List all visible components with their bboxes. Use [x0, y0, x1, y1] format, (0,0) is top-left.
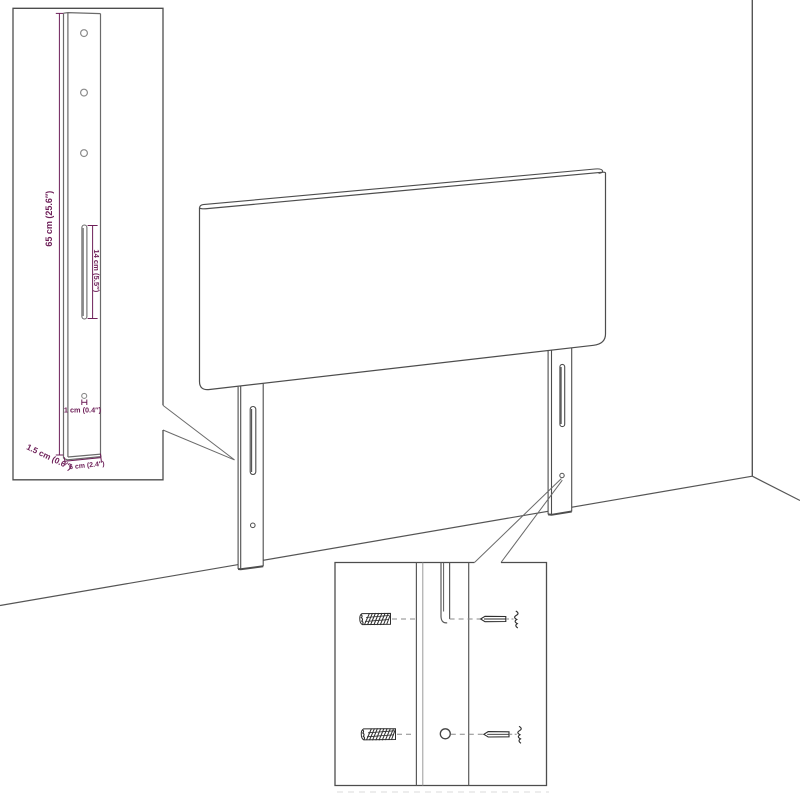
svg-text:65 cm (25.6″): 65 cm (25.6″) [44, 191, 54, 247]
svg-text:14 cm (5.5″): 14 cm (5.5″) [92, 249, 101, 292]
svg-text:1 cm (0.4″): 1 cm (0.4″) [64, 406, 102, 415]
